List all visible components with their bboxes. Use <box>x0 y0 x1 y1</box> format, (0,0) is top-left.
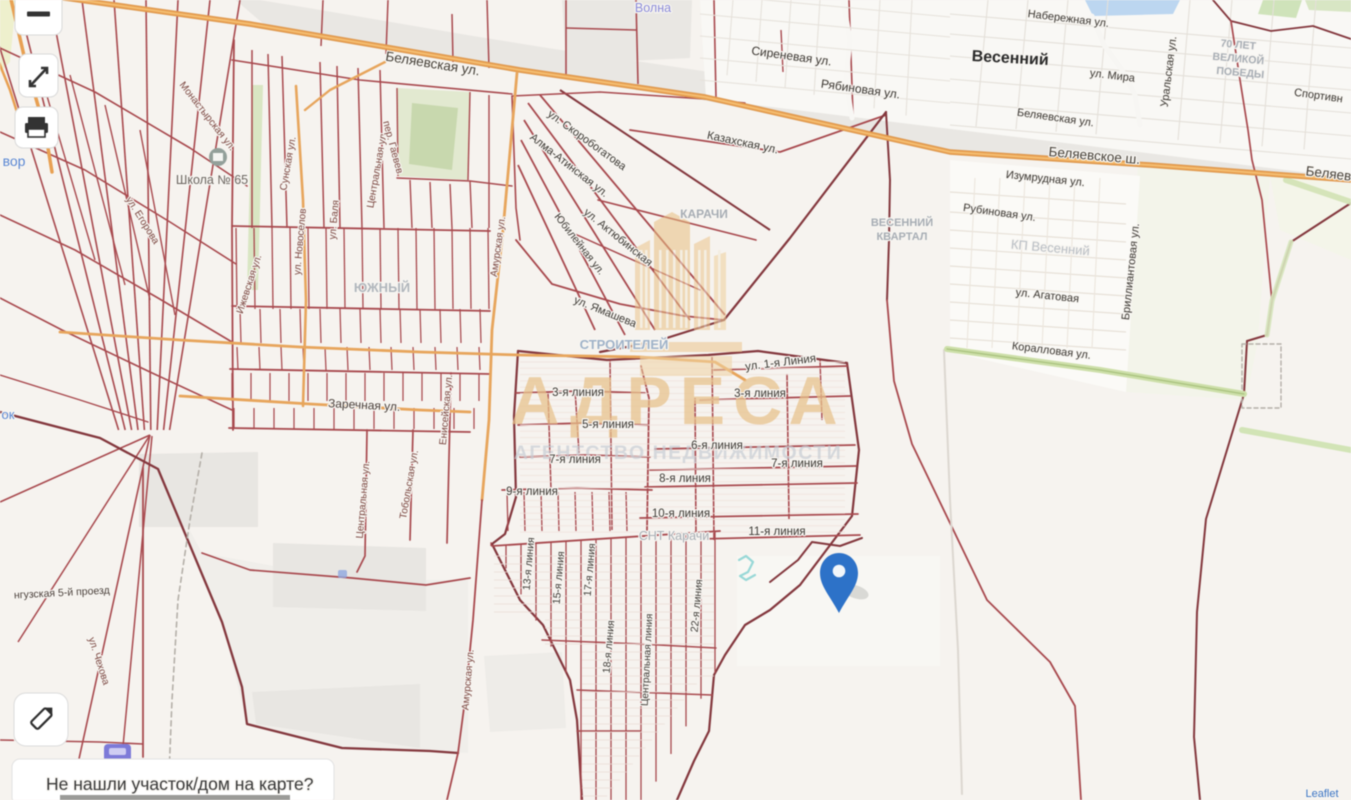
svg-text:3-я линия: 3-я линия <box>552 387 604 399</box>
svg-text:11-я линия: 11-я линия <box>748 526 805 538</box>
svg-text:АДРЕСА: АДРЕСА <box>510 363 845 439</box>
svg-text:5-я линия: 5-я линия <box>582 419 634 431</box>
svg-text:СНТ Карачи: СНТ Карачи <box>639 529 710 543</box>
svg-text:ЮЖНЫЙ: ЮЖНЫЙ <box>354 280 410 295</box>
svg-text:3-я линия: 3-я линия <box>734 388 786 400</box>
svg-text:Leaflet: Leaflet <box>1305 788 1338 800</box>
svg-text:Волна: Волна <box>635 1 671 15</box>
svg-text:вор: вор <box>3 153 26 169</box>
svg-text:ВЕСЕННИЙ: ВЕСЕННИЙ <box>871 216 933 229</box>
svg-text:КВАРТАЛ: КВАРТАЛ <box>876 231 927 243</box>
svg-text:7-я линия: 7-я линия <box>771 458 823 470</box>
svg-text:Школа № 65: Школа № 65 <box>176 173 248 187</box>
svg-text:Не нашли участок/дом на карте?: Не нашли участок/дом на карте? <box>46 774 314 794</box>
svg-text:КАРАЧИ: КАРАЧИ <box>680 207 728 221</box>
svg-text:СТРОИТЕЛЕЙ: СТРОИТЕЛЕЙ <box>580 337 669 352</box>
svg-text:ок: ок <box>2 407 15 422</box>
svg-text:9-я линия: 9-я линия <box>506 486 558 498</box>
svg-text:6-я линия: 6-я линия <box>691 440 743 452</box>
svg-text:7-я линия: 7-я линия <box>549 454 601 466</box>
svg-text:8-я линия: 8-я линия <box>659 473 711 485</box>
svg-text:10-я линия: 10-я линия <box>652 508 710 520</box>
